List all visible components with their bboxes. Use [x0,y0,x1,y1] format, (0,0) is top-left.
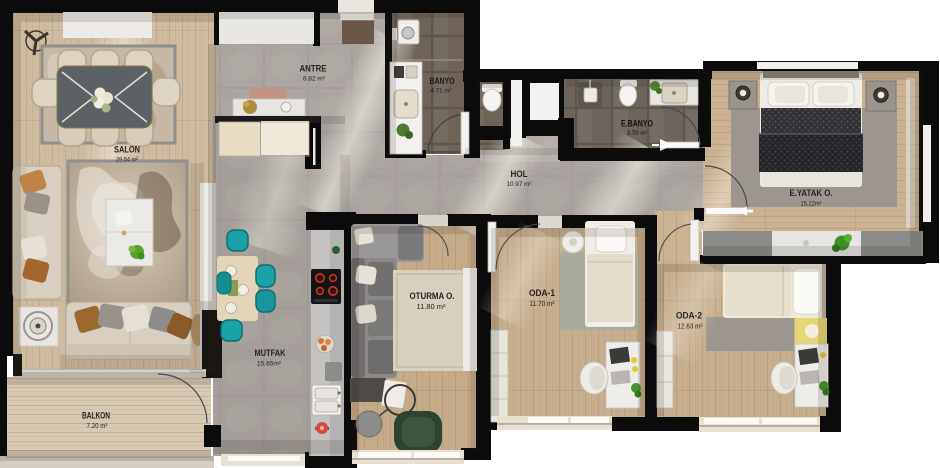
svg-text:4.71 m²: 4.71 m² [431,88,453,95]
svg-text:15.22m²: 15.22m² [801,201,823,208]
svg-text:OTURMA O.: OTURMA O. [410,291,455,301]
svg-text:29.54 m²: 29.54 m² [116,157,139,164]
svg-text:10.97 m²: 10.97 m² [507,181,533,188]
svg-text:HOL: HOL [511,169,528,179]
svg-text:6.82 m²: 6.82 m² [303,76,326,83]
svg-text:12.63 m²: 12.63 m² [678,324,704,331]
svg-text:3.70 m²: 3.70 m² [627,130,649,137]
svg-text:ODA-2: ODA-2 [676,311,702,321]
svg-text:15.65m²: 15.65m² [257,361,282,368]
svg-text:E.YATAK O.: E.YATAK O. [790,188,833,199]
svg-text:BALKON: BALKON [82,411,110,421]
svg-text:BANYO: BANYO [430,76,455,86]
svg-text:7.20 m²: 7.20 m² [87,423,109,430]
svg-text:E.BANYO: E.BANYO [621,119,653,129]
svg-text:ANTRE: ANTRE [300,64,327,74]
svg-text:SALON: SALON [114,145,140,155]
svg-text:MUTFAK: MUTFAK [255,348,286,358]
svg-text:ODA-1: ODA-1 [529,288,555,298]
svg-text:11.80 m²: 11.80 m² [417,304,447,311]
svg-text:11.70 m²: 11.70 m² [530,301,556,308]
